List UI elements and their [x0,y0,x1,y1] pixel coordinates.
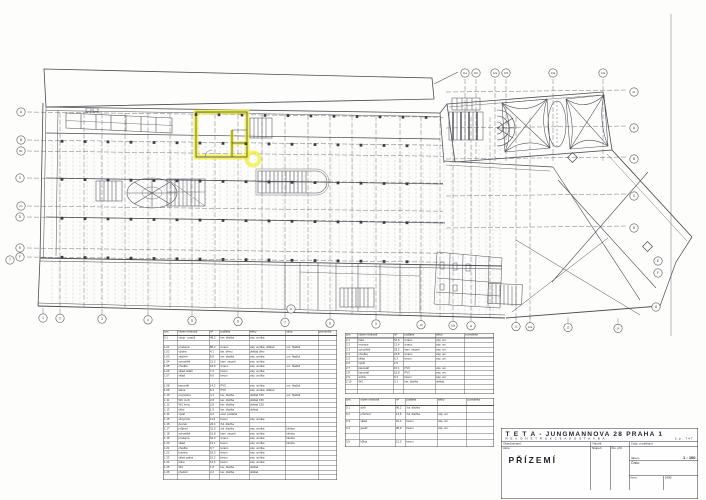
schedule-header-cell: strop [286,331,319,335]
schedule-header-cell: podlaha [406,399,438,405]
schedule-cell: 12,2 [395,440,406,446]
schedule-cell [318,475,337,479]
schedule-row [346,433,494,440]
schedule-cell [178,475,210,479]
schedule-cell [249,475,286,479]
schedule-header-cell: podlaha [404,334,436,338]
format-label: form. [630,476,664,490]
project-title: T E T A - JUNGMANNOVA 28 PRAHA 1 [506,430,694,438]
number-label: Číslo: [630,461,698,466]
sheet-label: Čís. příl. [610,447,629,491]
schedule-header-cell: ozn. [346,334,358,338]
schedule-cell [209,475,220,479]
schedule-row [164,475,337,480]
schedule-cell [465,389,494,393]
schedule-header-cell: ozn. [164,331,178,335]
schedule-cell [404,389,436,393]
schedule-row: 3.1dvůr96,2žul. dlažba [346,405,494,412]
room-schedule-main: ozn.název místnostim²podlahastěnystroppo… [163,330,337,480]
schedule-header-cell: m² [209,331,220,335]
schedule-row: 3.2průchod14,6žul. dlažbaváp. om. [346,412,494,419]
schedule-cell [358,389,394,393]
schedule-cell: beton [406,440,438,446]
schedule-header-cell: název místnosti [360,399,396,405]
schedule-cell [437,440,467,446]
schedule-cell [346,389,358,393]
schedule-header-cell: stěny [249,331,286,335]
stage-label: Stupeň [591,447,610,491]
schedule-header-cell: poznámka [465,334,494,338]
schedule-row: 3.3sklad22,4betonváp. om. [346,419,494,426]
room-schedule-tertiary: ozn.název místnostim²podlahastěnypoznámk… [345,398,494,447]
house-number: č.p. 747 [675,438,694,441]
schedule-header-row: ozn.název místnostim²podlahastěnypoznámk… [346,399,494,406]
annotation-layer: ozn.název místnostim²podlahastěnystroppo… [0,0,706,500]
schedule-cell [393,389,404,393]
drawing-name: PŘÍZEMÍ [502,451,591,466]
schedule-header-cell: název místnosti [178,331,210,335]
schedule-cell [286,475,319,479]
schedule-row: 3.5kůlna12,2beton [346,440,494,447]
title-block-header: T E T A - JUNGMANNOVA 28 PRAHA 1 R E K O… [502,429,698,443]
schedule-cell [164,475,178,479]
schedule-header-cell: podlaha [220,331,250,335]
project-subtitle: R E K O N S T R U K C E A D O S T A V B … [506,438,606,441]
title-block: T E T A - JUNGMANNOVA 28 PRAHA 1 R E K O… [501,428,698,499]
schedule-header-cell: poznámka [318,331,337,335]
schedule-cell [467,440,494,446]
schedule-cell: 3.5 [346,440,360,446]
schedule-header-cell: stěny [437,399,467,405]
schedule-header-cell: název místnosti [358,334,394,338]
schedule-cell: kůlna [360,440,396,446]
room-schedule-secondary: ozn.název místnostim²podlahastěnypoznámk… [345,333,494,394]
schedule-header-cell: m² [393,334,404,338]
schedule-header-cell: stěny [435,334,465,338]
scanned-floorplan-page: { "title_block": { "project": "T E T A -… [0,0,706,500]
schedule-cell [435,389,465,393]
schedule-header-cell: poznámka [467,399,494,405]
schedule-header-cell: m² [395,399,406,405]
schedule-row [346,389,494,394]
schedule-row: 3.4garáž28,9betonváp. om. [346,426,494,433]
year-value: 1980 [664,476,698,490]
schedule-cell [220,475,250,479]
schedule-header-cell: ozn. [346,399,360,405]
